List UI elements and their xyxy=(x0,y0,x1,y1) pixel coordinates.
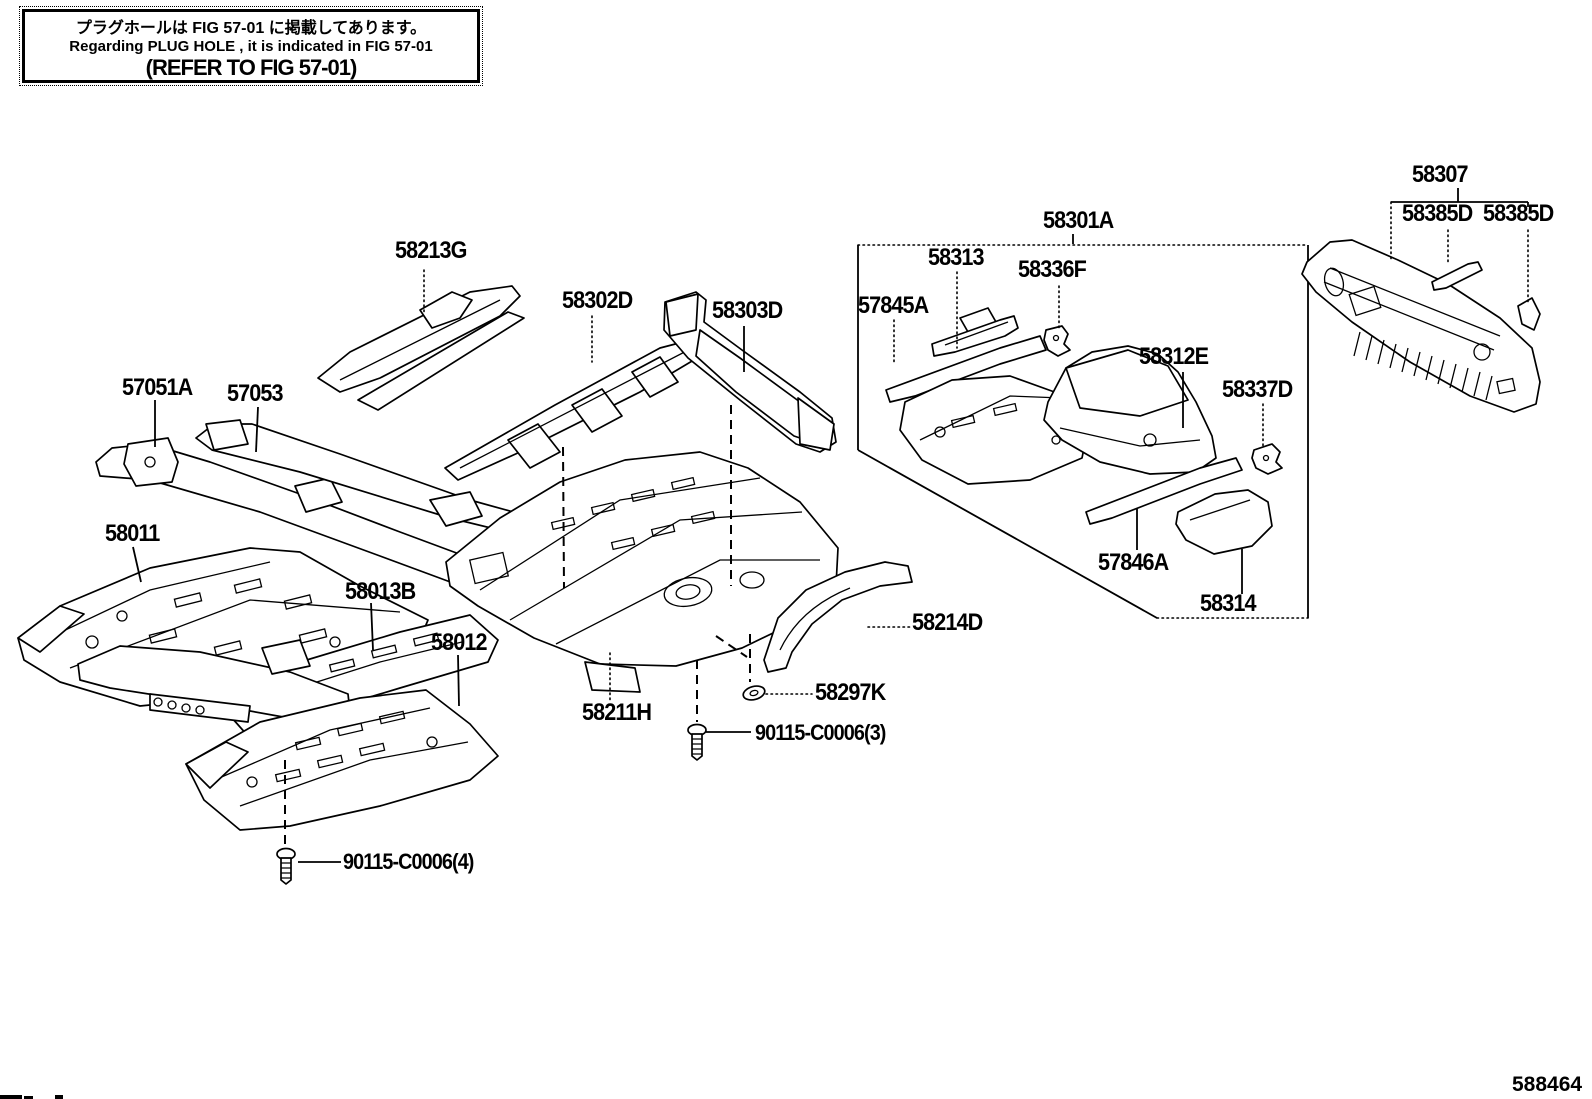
page-edge-marks xyxy=(0,1095,63,1099)
note-line-japanese: プラグホールは FIG 57-01 に掲載してあります。 xyxy=(25,14,477,38)
part-label-90115-C0006-3[interactable]: 90115-C0006(3) xyxy=(755,721,886,744)
screw-90115-C0006-4-icon xyxy=(277,849,295,885)
part-label-57846A[interactable]: 57846A xyxy=(1098,550,1168,575)
part-label-90115-C0006-4[interactable]: 90115-C0006(4) xyxy=(343,850,474,873)
part-label-58336F[interactable]: 58336F xyxy=(1018,257,1086,282)
part-label-58214D[interactable]: 58214D xyxy=(912,610,982,635)
diagram-canvas xyxy=(0,0,1592,1099)
part-label-58303D[interactable]: 58303D xyxy=(712,298,782,323)
part-58337D-clip xyxy=(1252,444,1282,474)
plug-hole-note-box: プラグホールは FIG 57-01 に掲載してあります。 Regarding P… xyxy=(22,9,480,83)
part-label-57053[interactable]: 57053 xyxy=(227,381,283,406)
part-label-58337D[interactable]: 58337D xyxy=(1222,377,1292,402)
part-58385D-strip xyxy=(1432,262,1482,290)
note-line-refer: (REFER TO FIG 57-01) xyxy=(25,55,477,81)
part-label-58213G[interactable]: 58213G xyxy=(395,238,466,263)
part-label-58297K[interactable]: 58297K xyxy=(815,680,885,705)
part-label-58013B[interactable]: 58013B xyxy=(345,579,415,604)
part-label-58302D[interactable]: 58302D xyxy=(562,288,632,313)
part-label-58012[interactable]: 58012 xyxy=(431,630,487,655)
part-label-57845A[interactable]: 57845A xyxy=(858,293,928,318)
part-58213G-member xyxy=(318,286,524,410)
part-label-57051A[interactable]: 57051A xyxy=(122,375,192,400)
figure-number: 588464 xyxy=(1512,1073,1582,1097)
part-58307-rear-panel xyxy=(1302,240,1540,412)
part-label-58011[interactable]: 58011 xyxy=(105,521,159,546)
part-label-58301A[interactable]: 58301A xyxy=(1043,208,1113,233)
part-label-58307[interactable]: 58307 xyxy=(1412,162,1468,187)
screw-90115-C0006-3-icon xyxy=(688,725,706,761)
part-label-58385D-left[interactable]: 58385D xyxy=(1402,201,1472,226)
grommet-58297K-icon xyxy=(742,684,767,702)
part-label-58314[interactable]: 58314 xyxy=(1200,591,1256,616)
note-line-english: Regarding PLUG HOLE , it is indicated in… xyxy=(25,38,477,55)
part-label-58385D-right[interactable]: 58385D xyxy=(1483,201,1553,226)
part-58336F-clip xyxy=(1044,326,1070,356)
part-label-58312E[interactable]: 58312E xyxy=(1139,344,1208,369)
parts-diagram-page: プラグホールは FIG 57-01 に掲載してあります。 Regarding P… xyxy=(0,0,1592,1099)
part-label-58313[interactable]: 58313 xyxy=(928,245,984,270)
part-58385D-wedge xyxy=(1518,298,1540,330)
part-58314-pan xyxy=(1176,490,1272,554)
part-label-58211H[interactable]: 58211H xyxy=(582,700,651,725)
